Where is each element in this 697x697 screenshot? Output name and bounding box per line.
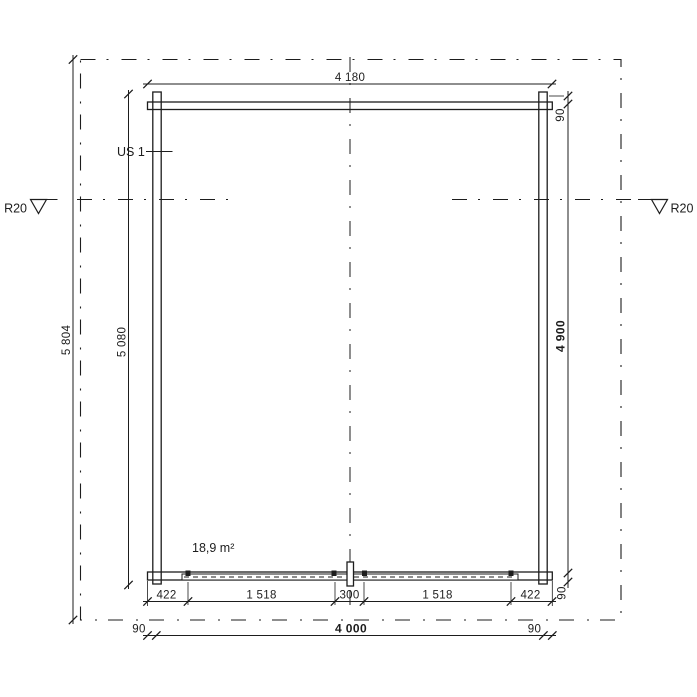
dim-bottom-seg1-label: 422 bbox=[156, 590, 176, 602]
wall-section-label: US 1 bbox=[117, 145, 145, 159]
front-doors bbox=[182, 562, 518, 586]
door-jamb-marker bbox=[362, 571, 367, 577]
dim-left-total: 5 804 bbox=[61, 55, 77, 624]
dim-bottom-seg3-label: 300 bbox=[339, 590, 359, 602]
dim-bottom-total: 90 4 000 90 bbox=[132, 622, 556, 640]
datum-triangle-icon bbox=[31, 200, 47, 214]
dim-right-top-overhang-label: 90 bbox=[555, 108, 567, 121]
dim-bottom-seg5-label: 422 bbox=[520, 590, 540, 602]
center-post bbox=[347, 562, 354, 586]
dim-left-total-label: 5 804 bbox=[61, 325, 73, 356]
dim-right-inner-label: 4 900 bbox=[554, 320, 568, 352]
dim-bottom-right-overhang-label: 90 bbox=[528, 624, 541, 636]
roof-datum-left: R20 bbox=[4, 200, 57, 216]
floor-plan-svg: 4 180 5 804 5 080 90 4 900 90 422 1 518 … bbox=[0, 0, 697, 697]
door-jamb-marker bbox=[509, 571, 514, 577]
dim-bottom-seg4-label: 1 518 bbox=[422, 590, 452, 602]
dim-top-total-label: 4 180 bbox=[335, 72, 365, 84]
dim-left-inner: 5 080 bbox=[117, 90, 133, 589]
datum-triangle-icon bbox=[652, 200, 668, 214]
dim-right-bottom-overhang-label: 90 bbox=[557, 586, 569, 599]
dim-top-total: 4 180 bbox=[143, 72, 556, 88]
dim-left-inner-label: 5 080 bbox=[117, 327, 129, 357]
wall-right bbox=[539, 92, 547, 584]
roof-datum-right: R20 bbox=[638, 200, 693, 216]
roof-datum-left-label: R20 bbox=[4, 202, 27, 216]
floor-area-label: 18,9 m² bbox=[192, 541, 234, 555]
roof-datum-right-label: R20 bbox=[671, 202, 694, 216]
dim-bottom-seg2-label: 1 518 bbox=[246, 590, 276, 602]
door-jamb-marker bbox=[186, 571, 191, 577]
wall-section-reference: US 1 bbox=[117, 145, 173, 159]
dim-right-chain: 90 4 900 90 bbox=[549, 91, 572, 600]
dim-bottom-left-overhang-label: 90 bbox=[132, 624, 145, 636]
door-jamb-marker bbox=[332, 571, 337, 577]
dim-bottom-total-label: 4 000 bbox=[335, 622, 367, 636]
floor-plan-drawing: 4 180 5 804 5 080 90 4 900 90 422 1 518 … bbox=[0, 0, 697, 697]
wall-left bbox=[153, 92, 161, 584]
